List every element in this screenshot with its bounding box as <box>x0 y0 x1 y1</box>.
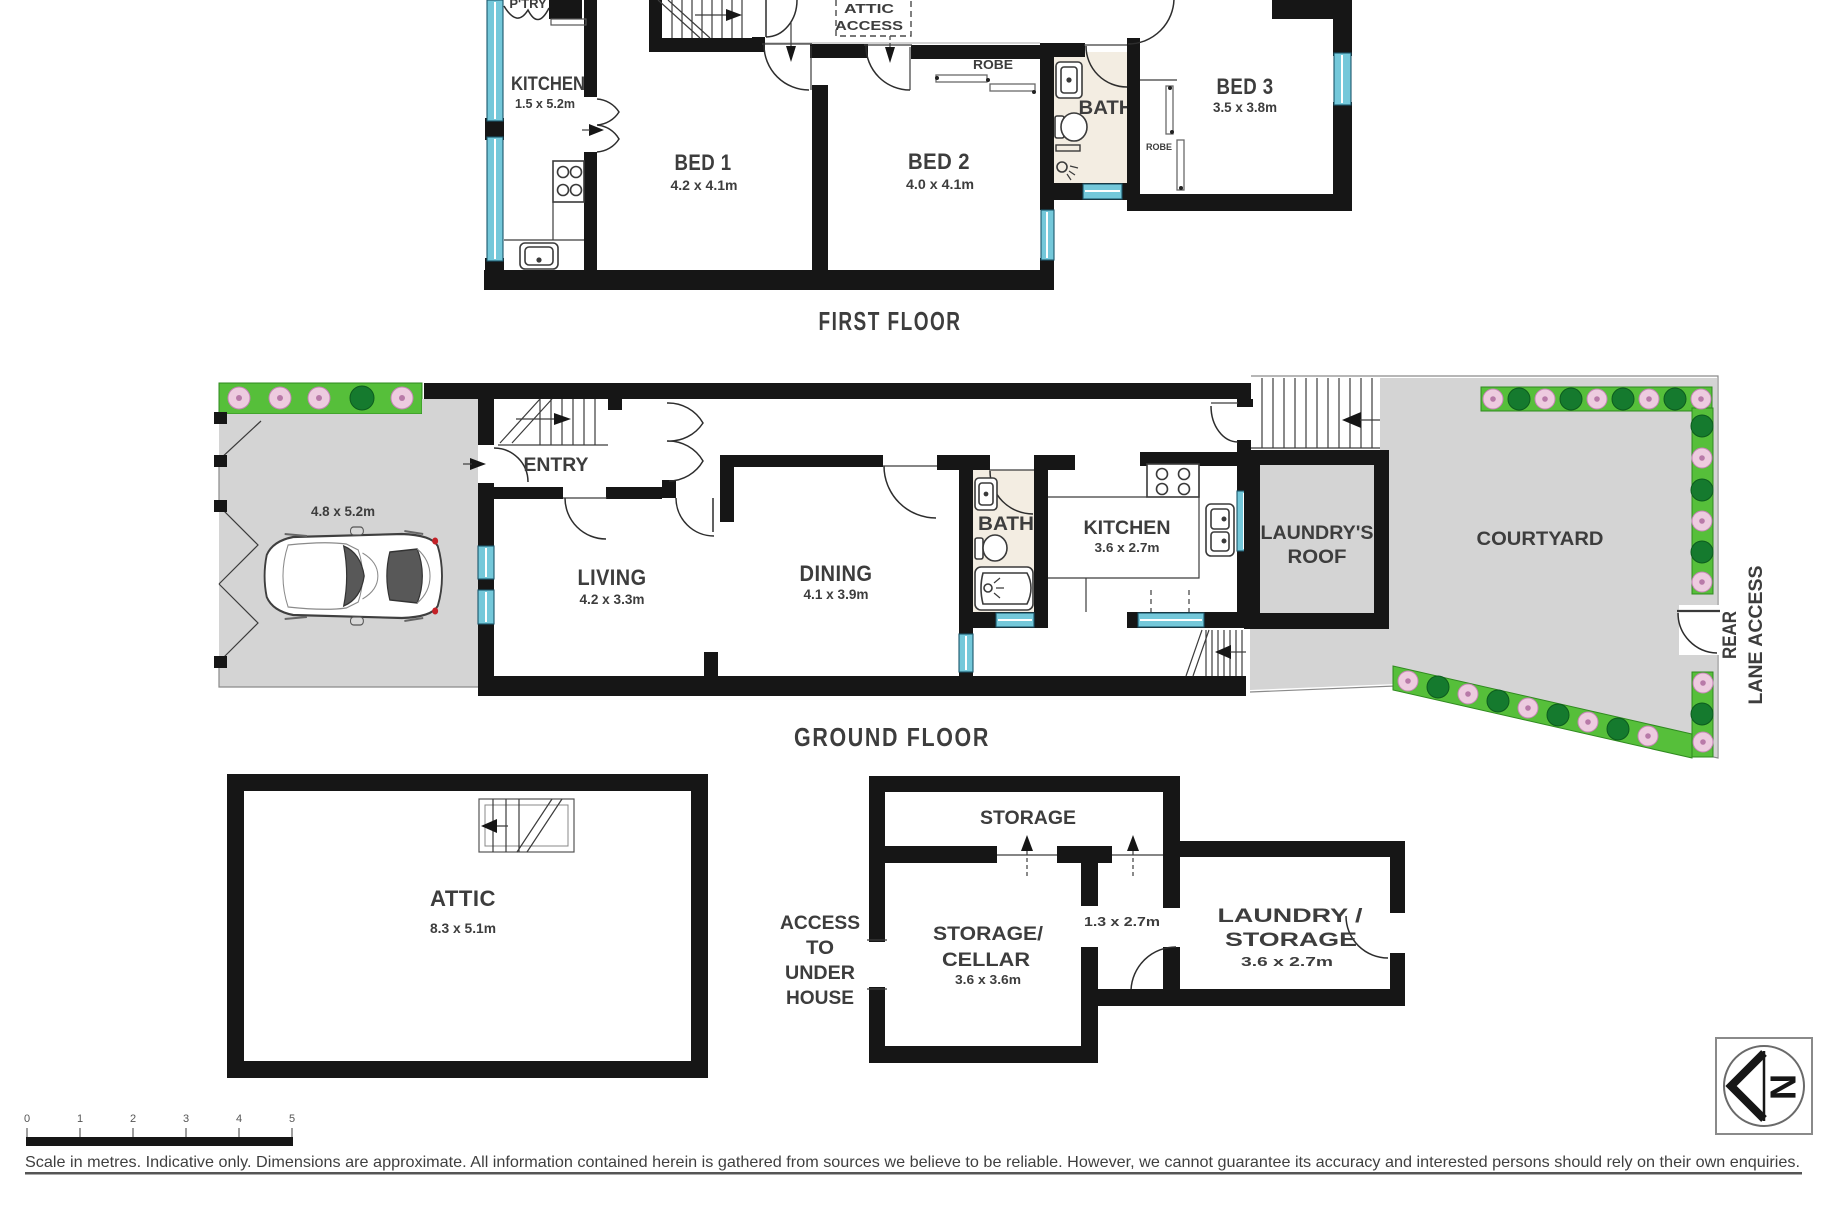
svg-text:4.0 x 4.1m: 4.0 x 4.1m <box>906 176 974 192</box>
svg-text:REAR: REAR <box>1720 611 1741 659</box>
svg-text:3.6 x 2.7m: 3.6 x 2.7m <box>1095 540 1160 555</box>
svg-text:4.2 x 4.1m: 4.2 x 4.1m <box>671 177 738 193</box>
svg-text:KITCHEN: KITCHEN <box>511 74 585 95</box>
svg-text:TO: TO <box>806 938 834 959</box>
svg-text:ACCESS: ACCESS <box>780 913 860 934</box>
svg-text:3.6 x 2.7m: 3.6 x 2.7m <box>1241 954 1333 969</box>
svg-text:4.2 x 3.3m: 4.2 x 3.3m <box>580 591 645 607</box>
svg-text:UNDER: UNDER <box>785 963 855 984</box>
svg-text:ROBE: ROBE <box>973 57 1013 72</box>
svg-text:5: 5 <box>289 1113 295 1125</box>
svg-text:HOUSE: HOUSE <box>786 988 854 1009</box>
svg-text:BATH: BATH <box>1079 98 1134 119</box>
svg-text:BATH: BATH <box>978 514 1034 535</box>
svg-text:P'TRY: P'TRY <box>509 0 547 11</box>
svg-text:GROUND FLOOR: GROUND FLOOR <box>794 722 990 752</box>
svg-text:1: 1 <box>77 1113 83 1125</box>
svg-text:LIVING: LIVING <box>578 565 647 590</box>
svg-text:ROOF: ROOF <box>1288 547 1347 568</box>
svg-text:CELLAR: CELLAR <box>942 950 1030 971</box>
svg-text:STORAGE: STORAGE <box>1225 930 1357 951</box>
svg-text:Scale in metres. Indicative on: Scale in metres. Indicative only. Dimens… <box>25 1154 1800 1171</box>
svg-text:2: 2 <box>130 1113 136 1125</box>
svg-text:BED 1: BED 1 <box>675 150 732 175</box>
svg-text:3.6 x 3.6m: 3.6 x 3.6m <box>955 972 1021 987</box>
svg-text:LAUNDRY'S: LAUNDRY'S <box>1261 523 1374 544</box>
svg-text:3.5 x 3.8m: 3.5 x 3.8m <box>1213 99 1277 115</box>
svg-text:STORAGE: STORAGE <box>980 808 1076 829</box>
svg-text:8.3 x 5.1m: 8.3 x 5.1m <box>430 920 496 936</box>
svg-text:KITCHEN: KITCHEN <box>1084 518 1171 539</box>
svg-text:1.5 x 5.2m: 1.5 x 5.2m <box>515 96 575 111</box>
svg-text:COURTYARD: COURTYARD <box>1477 529 1604 550</box>
svg-text:4.8 x 5.2m: 4.8 x 5.2m <box>311 503 375 519</box>
svg-text:LAUNDRY /: LAUNDRY / <box>1218 906 1364 927</box>
svg-text:3: 3 <box>183 1113 189 1125</box>
svg-text:ATTIC: ATTIC <box>430 886 496 911</box>
svg-text:4.1 x 3.9m: 4.1 x 3.9m <box>804 586 869 602</box>
svg-text:LANE ACCESS: LANE ACCESS <box>1746 566 1767 705</box>
svg-text:4: 4 <box>236 1113 242 1125</box>
svg-text:ROBE: ROBE <box>1146 142 1172 152</box>
svg-text:0: 0 <box>24 1113 30 1125</box>
svg-text:ACCESS: ACCESS <box>835 18 903 33</box>
svg-text:DINING: DINING <box>800 561 873 586</box>
svg-text:ATTIC: ATTIC <box>844 1 895 16</box>
svg-text:STORAGE/: STORAGE/ <box>933 924 1044 945</box>
svg-text:1.3 x 2.7m: 1.3 x 2.7m <box>1084 914 1160 929</box>
svg-text:BED 3: BED 3 <box>1217 74 1274 99</box>
svg-text:N: N <box>1763 1074 1804 1100</box>
svg-text:ENTRY: ENTRY <box>524 455 589 476</box>
svg-text:FIRST FLOOR: FIRST FLOOR <box>819 306 962 336</box>
svg-text:BED 2: BED 2 <box>908 149 970 174</box>
